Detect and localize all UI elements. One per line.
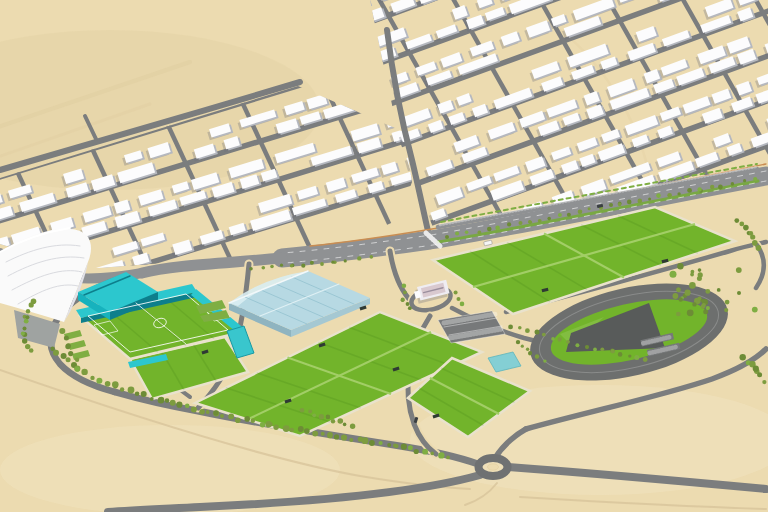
- tree: [401, 444, 407, 450]
- tree: [128, 387, 135, 394]
- tree: [141, 391, 147, 397]
- tree: [402, 283, 407, 288]
- tree: [321, 432, 325, 436]
- tree: [29, 348, 34, 353]
- tree: [538, 219, 542, 223]
- tree: [422, 449, 428, 455]
- tree: [724, 308, 728, 312]
- tree: [567, 213, 571, 217]
- tree: [667, 193, 672, 198]
- tree: [262, 266, 266, 270]
- tree: [50, 347, 54, 351]
- tree: [319, 414, 324, 419]
- tree: [445, 235, 449, 239]
- tree: [725, 300, 730, 305]
- tree: [387, 443, 391, 447]
- tree: [66, 357, 71, 362]
- tree: [676, 312, 681, 317]
- tree: [265, 421, 271, 427]
- tree: [446, 456, 450, 460]
- tree: [235, 417, 241, 423]
- tree: [638, 199, 643, 204]
- tree: [648, 198, 651, 201]
- tree: [75, 358, 79, 362]
- tree: [300, 408, 305, 413]
- tree: [593, 348, 597, 352]
- tree: [327, 433, 332, 438]
- tree: [22, 338, 27, 343]
- tree: [26, 309, 30, 313]
- tree: [677, 192, 680, 195]
- tree: [403, 290, 407, 294]
- tree: [362, 437, 369, 444]
- tree: [112, 381, 119, 388]
- tree: [438, 452, 444, 458]
- tree: [344, 259, 347, 262]
- tree: [516, 340, 520, 344]
- tree: [150, 397, 154, 401]
- tree: [220, 414, 224, 418]
- tree: [251, 419, 256, 424]
- tree: [401, 298, 405, 302]
- tree: [61, 353, 67, 359]
- tree: [706, 306, 710, 310]
- tree: [736, 267, 742, 273]
- tree: [206, 410, 210, 414]
- tree: [331, 419, 335, 423]
- tree: [697, 276, 702, 281]
- tree: [394, 444, 398, 448]
- tree: [526, 348, 529, 351]
- tree: [24, 319, 29, 324]
- tree: [199, 409, 205, 415]
- tree: [508, 325, 513, 330]
- tree: [478, 231, 482, 235]
- tree: [343, 423, 347, 427]
- tree: [717, 288, 721, 292]
- tree: [547, 217, 551, 221]
- tree: [357, 256, 361, 260]
- tree: [454, 290, 458, 294]
- tree: [430, 452, 434, 456]
- tree: [692, 302, 696, 306]
- tree: [338, 418, 344, 424]
- tree: [280, 264, 283, 267]
- masterplan-render: [0, 0, 768, 512]
- tree: [455, 232, 459, 236]
- tree: [701, 299, 704, 302]
- tree: [525, 328, 530, 333]
- tree: [528, 351, 532, 355]
- tree: [379, 441, 383, 445]
- tree: [634, 355, 639, 360]
- tree: [298, 426, 304, 432]
- tree: [165, 398, 170, 403]
- tree: [507, 222, 511, 226]
- tree: [25, 344, 30, 349]
- tree: [575, 343, 579, 347]
- tree: [176, 402, 182, 408]
- tree: [304, 428, 310, 434]
- tree: [710, 185, 714, 189]
- tree: [673, 293, 679, 299]
- tree: [66, 343, 71, 348]
- tree: [170, 400, 176, 406]
- tree: [750, 234, 755, 239]
- tree: [334, 434, 339, 439]
- tree: [290, 428, 294, 432]
- tree: [53, 350, 59, 356]
- tree: [535, 354, 539, 358]
- tree: [308, 409, 312, 413]
- tree: [369, 440, 375, 446]
- tree: [752, 240, 758, 246]
- tree: [370, 255, 374, 259]
- tree: [406, 302, 410, 306]
- tree: [120, 387, 124, 391]
- tree: [244, 416, 250, 422]
- tree: [677, 263, 683, 269]
- tree: [487, 227, 492, 232]
- tree: [558, 213, 562, 217]
- tree: [676, 288, 680, 292]
- tree: [213, 410, 218, 415]
- tree: [331, 261, 334, 264]
- tree: [679, 297, 683, 301]
- tree: [528, 220, 531, 223]
- tree: [185, 404, 190, 409]
- tree: [408, 306, 412, 310]
- tree: [757, 372, 762, 377]
- tree: [519, 221, 523, 225]
- tree: [535, 330, 540, 335]
- tree: [408, 445, 413, 450]
- tree: [518, 326, 522, 330]
- tree: [301, 264, 305, 268]
- tree: [249, 267, 253, 271]
- tree: [551, 337, 555, 341]
- tree: [743, 179, 746, 182]
- tree: [731, 182, 735, 186]
- tree: [68, 351, 73, 356]
- tree: [656, 193, 661, 198]
- tree: [685, 290, 691, 296]
- tree: [273, 425, 278, 430]
- tree: [698, 268, 702, 272]
- tree: [578, 209, 583, 214]
- tree: [670, 271, 677, 278]
- tree: [740, 354, 746, 360]
- tree: [21, 332, 25, 336]
- tree: [600, 347, 604, 351]
- tree: [618, 352, 623, 357]
- tree: [753, 366, 759, 372]
- tree: [75, 366, 80, 371]
- tree: [609, 203, 613, 207]
- tree: [310, 261, 314, 265]
- tree: [283, 425, 290, 432]
- tree: [687, 188, 692, 193]
- tree: [753, 177, 757, 181]
- tree: [495, 226, 500, 231]
- tree: [270, 265, 274, 269]
- tree: [739, 222, 744, 227]
- tree: [290, 264, 293, 267]
- tree: [756, 245, 762, 251]
- roundabout-island: [488, 464, 499, 470]
- tree: [566, 340, 570, 344]
- tree: [734, 218, 739, 223]
- tree: [588, 207, 591, 210]
- tree: [414, 449, 419, 454]
- tree: [457, 297, 461, 301]
- tree: [191, 406, 197, 412]
- tree: [320, 262, 324, 266]
- tree: [23, 327, 27, 331]
- tree: [135, 392, 140, 397]
- tree: [521, 345, 524, 348]
- tree: [460, 302, 465, 307]
- tree: [312, 413, 316, 417]
- tree: [704, 300, 707, 303]
- tree: [81, 369, 87, 375]
- tree: [558, 337, 561, 340]
- tree: [585, 345, 589, 349]
- tree: [90, 376, 94, 380]
- tree: [543, 359, 546, 362]
- tree: [611, 349, 615, 353]
- tree: [697, 187, 701, 191]
- tree: [718, 185, 723, 190]
- tree: [690, 273, 694, 277]
- tree: [59, 328, 65, 334]
- tree: [743, 225, 749, 231]
- tree: [25, 315, 29, 319]
- tree: [752, 307, 758, 313]
- tree: [326, 415, 330, 419]
- map-canvas: [0, 0, 768, 512]
- tree: [687, 309, 694, 316]
- tree: [627, 200, 632, 205]
- tree: [29, 302, 34, 307]
- tree: [228, 414, 234, 420]
- tree: [542, 333, 546, 337]
- tree: [628, 354, 631, 357]
- tree: [260, 422, 265, 427]
- tree: [64, 336, 69, 341]
- tree: [465, 230, 469, 234]
- tree: [349, 438, 353, 442]
- tree: [737, 291, 741, 295]
- tree: [618, 203, 622, 207]
- tree: [96, 378, 102, 384]
- tree: [689, 282, 696, 289]
- tree: [341, 434, 347, 440]
- tree: [705, 289, 710, 294]
- tree: [158, 397, 165, 404]
- tree: [643, 357, 648, 362]
- tree: [762, 380, 766, 384]
- tree: [105, 381, 111, 387]
- tree: [702, 303, 706, 307]
- tree: [312, 431, 318, 437]
- tree: [350, 424, 355, 429]
